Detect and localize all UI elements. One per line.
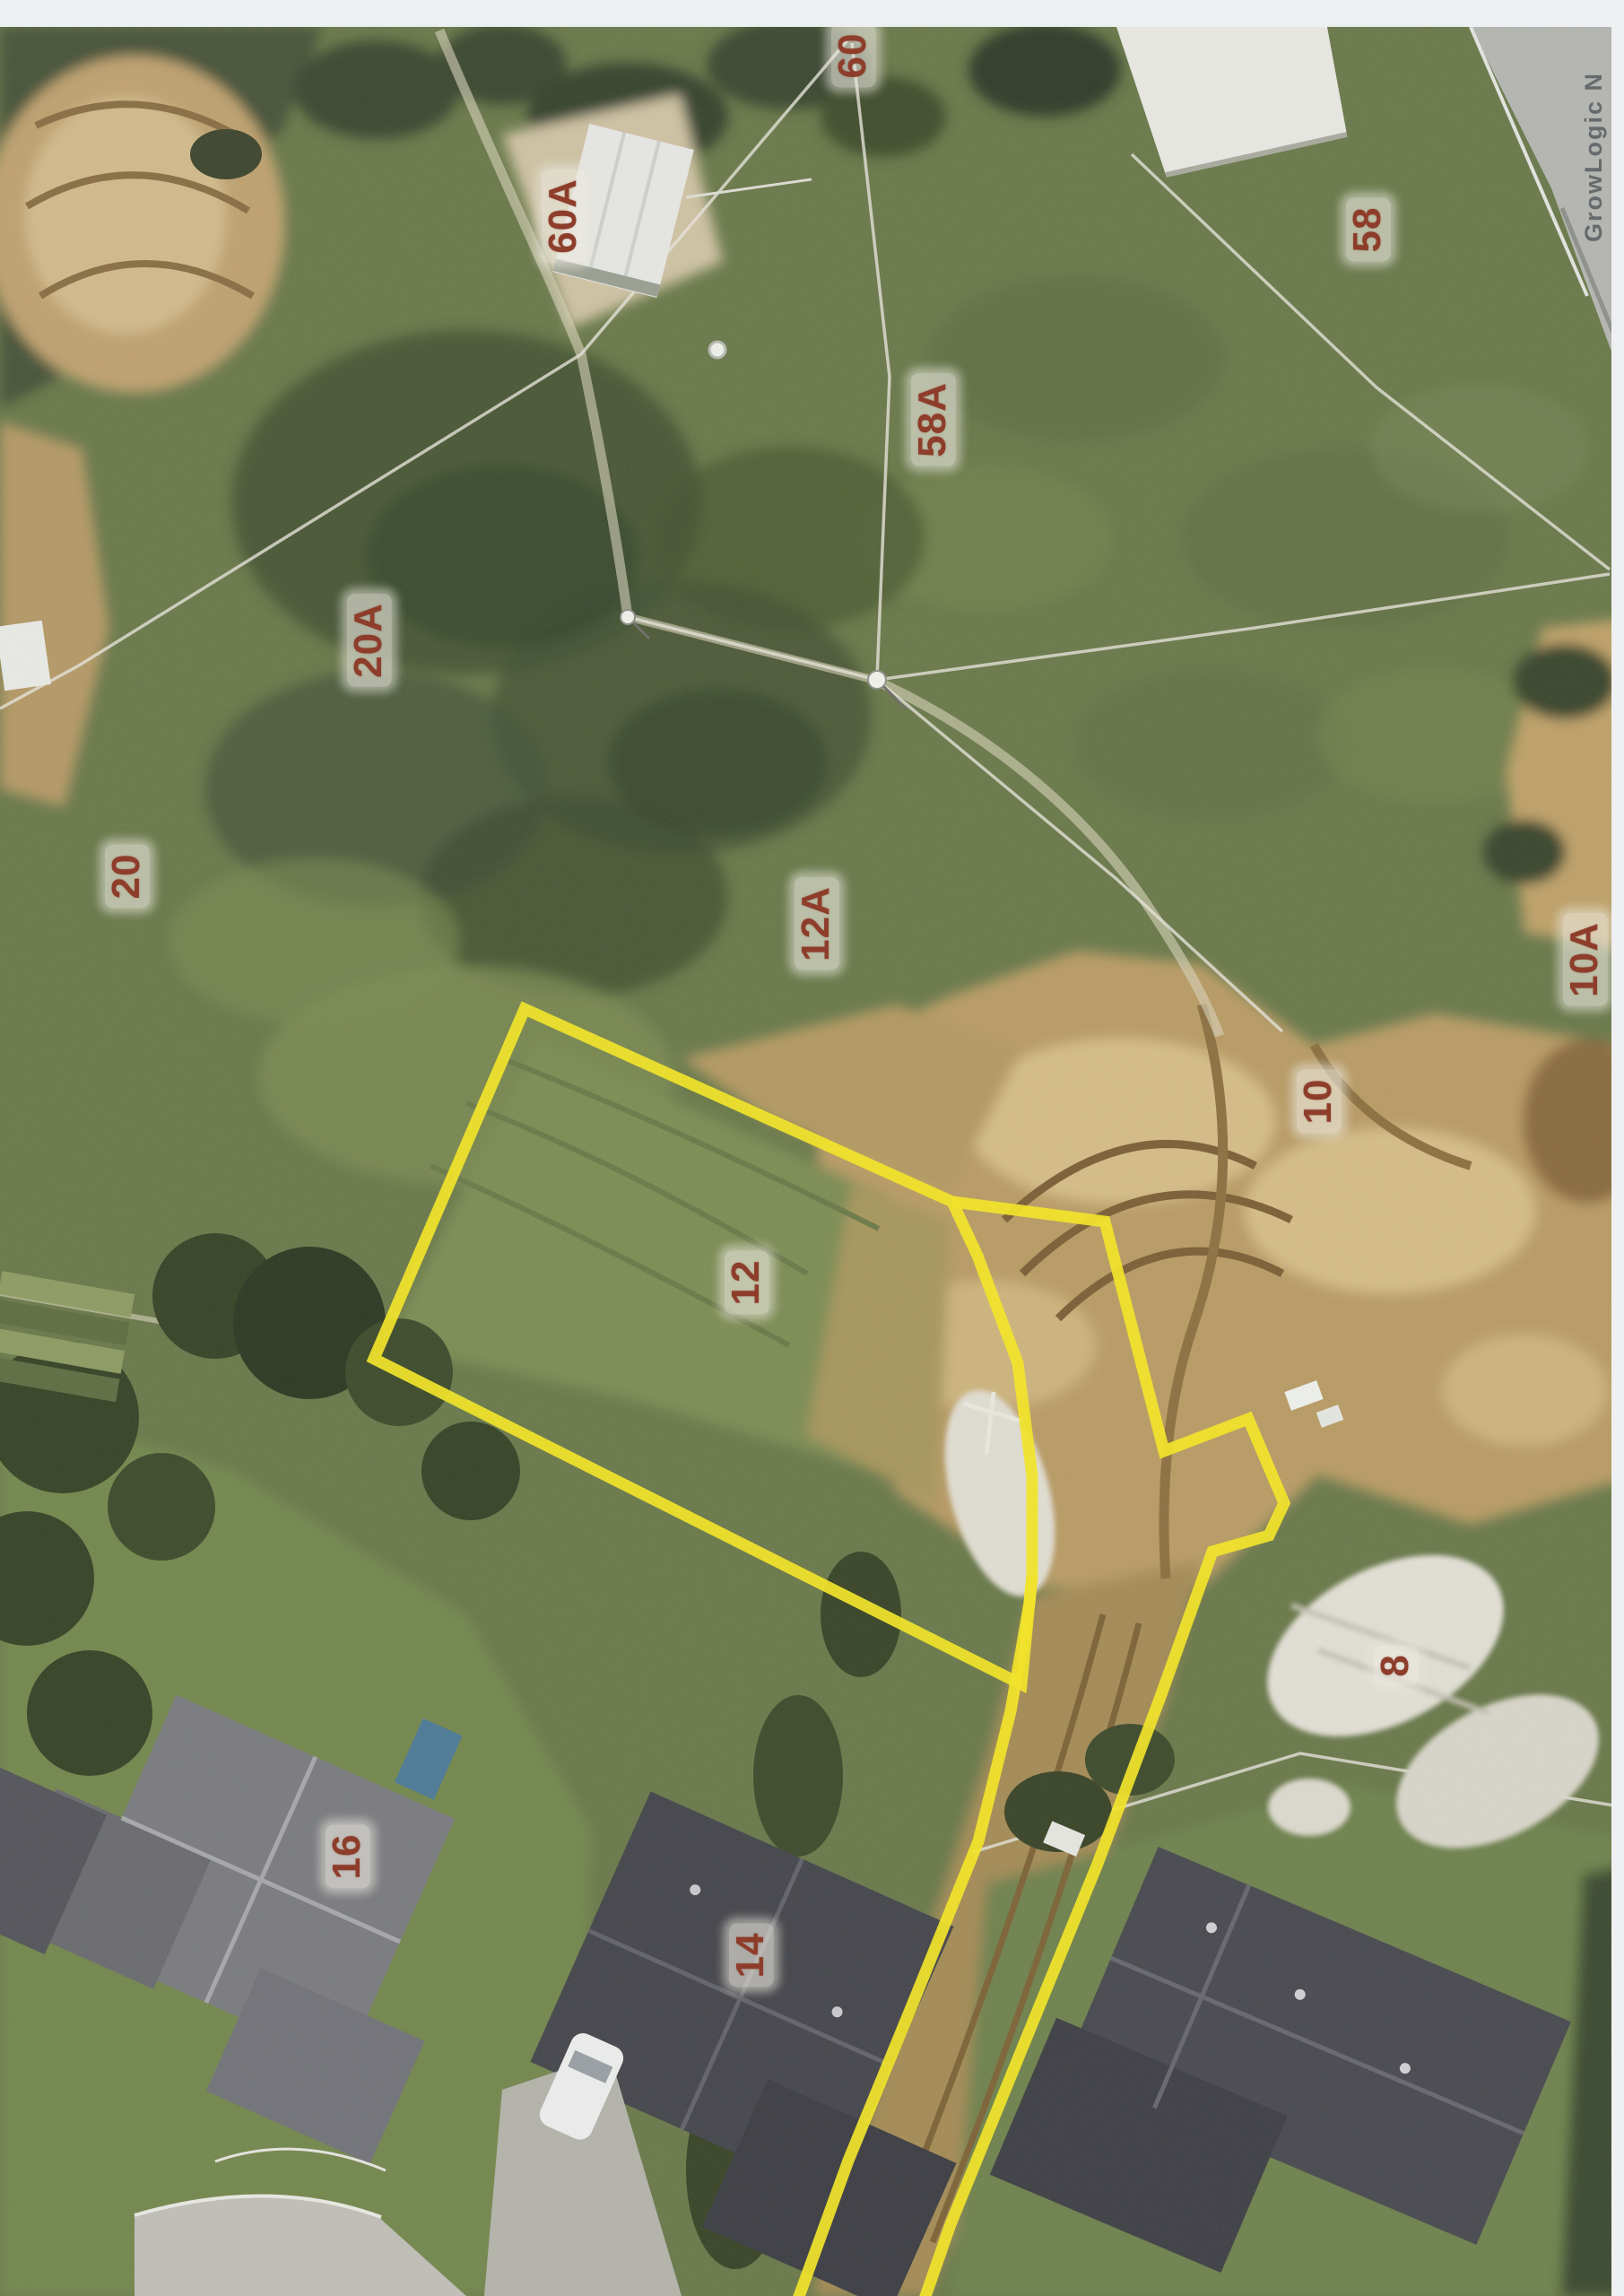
scan-margin-top [0, 0, 1624, 27]
watermark-text: GrowLogic N [1580, 36, 1611, 242]
aerial-photo [0, 0, 1624, 2296]
scan-margin-right [1611, 0, 1624, 2296]
scanned-aerial-map: 6060A5858A20A2012A10A101281614 GrowLogic… [0, 0, 1624, 2296]
scan-grain [0, 0, 1624, 2296]
